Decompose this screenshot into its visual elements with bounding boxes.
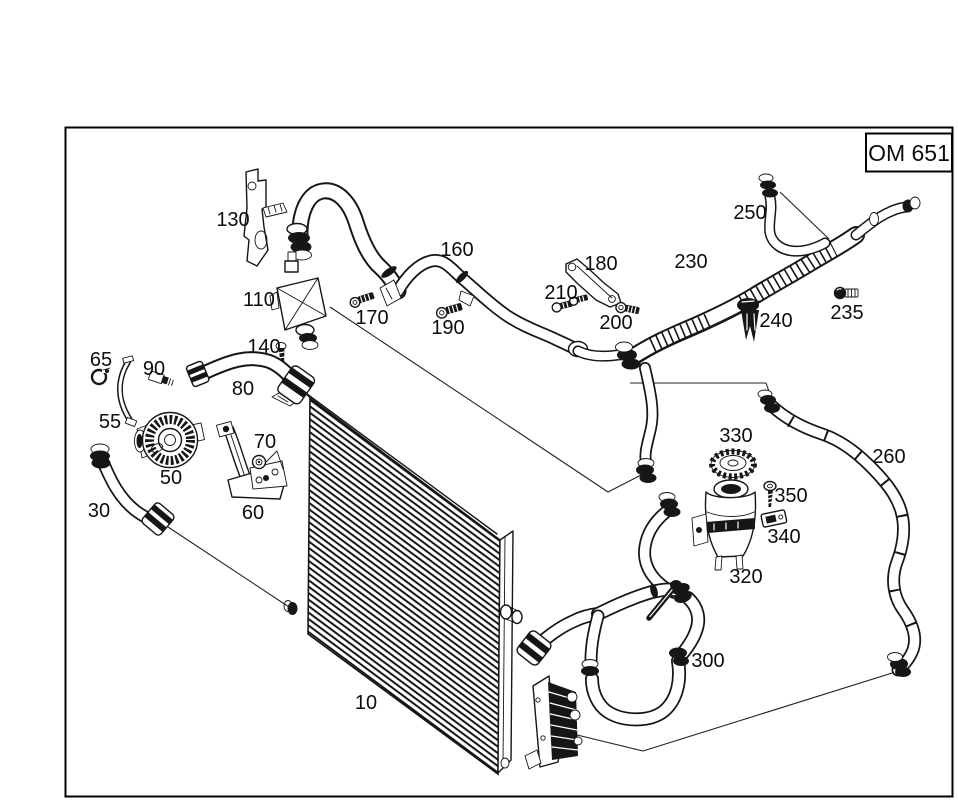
callout-240[interactable]: 240 — [759, 310, 792, 332]
engine-code-label: OM 651 — [868, 140, 950, 166]
callout-140[interactable]: 140 — [247, 336, 280, 358]
part-screw-235 — [834, 287, 858, 299]
parts-diagram-canvas: OM 651 10 30 50 55 60 65 70 80 90 110 13… — [0, 0, 958, 802]
om-651-box: OM 651 — [866, 134, 952, 172]
callout-230[interactable]: 230 — [674, 251, 707, 273]
callout-330[interactable]: 330 — [719, 425, 752, 447]
callout-55[interactable]: 55 — [99, 411, 121, 433]
part-grommet-70 — [253, 456, 266, 469]
callout-70[interactable]: 70 — [254, 431, 276, 453]
callout-320[interactable]: 320 — [729, 566, 762, 588]
callout-350[interactable]: 350 — [774, 485, 807, 507]
callout-110[interactable]: 110 — [243, 289, 275, 311]
callout-130[interactable]: 130 — [216, 209, 249, 231]
callout-50[interactable]: 50 — [160, 467, 182, 489]
callout-200[interactable]: 200 — [599, 312, 632, 334]
callout-60[interactable]: 60 — [242, 502, 264, 524]
callout-235[interactable]: 235 — [830, 302, 863, 324]
callout-260[interactable]: 260 — [872, 446, 905, 468]
parts-diagram-page: OM 651 10 30 50 55 60 65 70 80 90 110 13… — [0, 0, 958, 802]
callout-65[interactable]: 65 — [90, 349, 112, 371]
callout-170[interactable]: 170 — [355, 307, 388, 329]
callout-180[interactable]: 180 — [584, 253, 617, 275]
callout-190[interactable]: 190 — [431, 317, 464, 339]
callout-210[interactable]: 210 — [544, 282, 577, 304]
callout-30[interactable]: 30 — [88, 500, 110, 522]
callout-80[interactable]: 80 — [232, 378, 254, 400]
callout-300[interactable]: 300 — [691, 650, 724, 672]
callout-250[interactable]: 250 — [733, 202, 766, 224]
callout-90[interactable]: 90 — [143, 358, 165, 380]
callout-10[interactable]: 10 — [355, 692, 377, 714]
callout-340[interactable]: 340 — [767, 526, 800, 548]
callout-160[interactable]: 160 — [440, 239, 473, 261]
